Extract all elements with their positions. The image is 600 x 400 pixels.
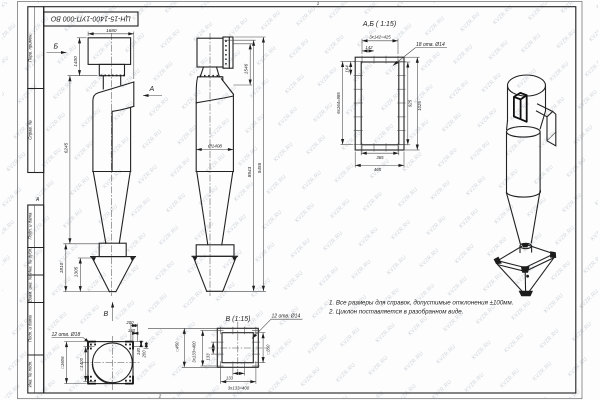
svg-text:3х142=425: 3х142=425 [369, 35, 391, 40]
svg-text:Подп. и дата: Подп. и дата [27, 212, 32, 240]
svg-text:1810: 1810 [59, 262, 64, 273]
svg-text:□1606: □1606 [60, 356, 65, 369]
svg-text:140: 140 [136, 347, 141, 355]
svg-text:А: А [35, 197, 40, 203]
svg-text:А,Б ( 1:15): А,Б ( 1:15) [362, 21, 396, 28]
svg-text:164: 164 [344, 65, 349, 73]
svg-text:133: 133 [206, 353, 211, 361]
svg-text:Перв. примен.: Перв. примен. [27, 33, 32, 62]
svg-text:465: 465 [374, 167, 382, 172]
svg-text:1546: 1546 [244, 63, 249, 74]
svg-text:133: 133 [226, 376, 234, 381]
svg-text:Взам. инв. №: Взам. инв. № [27, 275, 32, 302]
svg-text:Ø1408: Ø1408 [207, 143, 222, 148]
svg-text:1400: 1400 [73, 56, 78, 67]
svg-text:365: 365 [376, 155, 384, 160]
svg-text:Справ. №: Справ. № [27, 120, 32, 140]
svg-text:12 отв. Ø18: 12 отв. Ø18 [52, 332, 81, 338]
svg-text:12 отв. Ø14: 12 отв. Ø14 [272, 314, 301, 320]
svg-text:200: 200 [125, 320, 134, 325]
svg-text:3х133=400: 3х133=400 [192, 341, 197, 363]
svg-text:Инв. № подл.: Инв. № подл. [27, 361, 32, 388]
svg-text:1305: 1305 [74, 266, 79, 277]
svg-text:1680: 1680 [106, 28, 117, 33]
svg-text:6245: 6245 [63, 142, 68, 153]
svg-text:2. Циклон поставляется в разоб: 2. Циклон поставляется в разобранном вид… [328, 309, 463, 316]
svg-text:В: В [104, 311, 109, 318]
svg-text:925: 925 [407, 99, 412, 107]
svg-text:200: 200 [141, 350, 146, 359]
svg-text:1. Все размеры для справок, до: 1. Все размеры для справок, допустимые о… [329, 300, 514, 307]
svg-text:3х133=400: 3х133=400 [228, 386, 250, 391]
svg-text:□350: □350 [266, 344, 271, 354]
svg-text:Подп. и дата: Подп. и дата [27, 315, 32, 343]
svg-text:□1400: □1400 [79, 357, 84, 370]
svg-text:9455: 9455 [257, 162, 262, 173]
svg-text:8943: 8943 [247, 166, 252, 177]
svg-text:140: 140 [128, 328, 136, 333]
svg-text:□450: □450 [175, 341, 180, 351]
svg-text:18 отв. Ø14: 18 отв. Ø14 [416, 42, 445, 48]
svg-text:Б: Б [54, 44, 59, 51]
svg-text:ЦН-15-1400-1УП-000 ВО: ЦН-15-1400-1УП-000 ВО [50, 15, 130, 22]
svg-text:Инв. № дубл.: Инв. № дубл. [27, 248, 32, 274]
svg-text:6х164=985: 6х164=985 [336, 92, 341, 114]
svg-text:142: 142 [365, 45, 373, 50]
svg-text:1025: 1025 [417, 101, 422, 111]
svg-text:А: А [149, 86, 155, 93]
